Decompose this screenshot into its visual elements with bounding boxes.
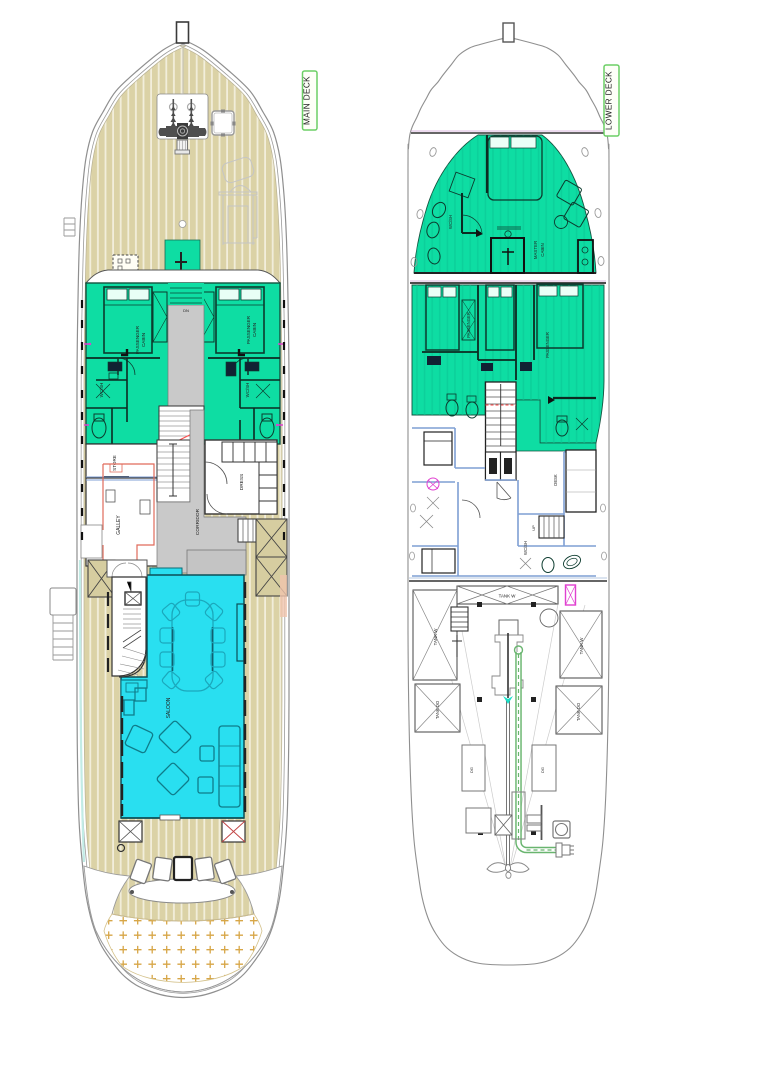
svg-text:CABIN: CABIN (540, 243, 545, 256)
svg-text:DN: DN (183, 308, 189, 313)
svg-text:WC/SH: WC/SH (523, 541, 528, 555)
svg-text:TANK W: TANK W (433, 628, 438, 646)
svg-text:GALLEY: GALLEY (116, 515, 122, 535)
svg-text:UP: UP (531, 525, 536, 531)
svg-text:DRESS: DRESS (239, 474, 245, 491)
svg-text:TANK W: TANK W (579, 637, 584, 655)
svg-text:WC/SH: WC/SH (99, 383, 104, 398)
svg-text:CORRIDOR: CORRIDOR (195, 508, 201, 535)
svg-text:DG: DG (540, 767, 545, 773)
svg-text:WC/SH: WC/SH (448, 215, 453, 229)
svg-text:PASSENGER: PASSENGER (545, 332, 550, 358)
svg-text:PASSENGER: PASSENGER (135, 325, 140, 354)
svg-text:DG: DG (469, 767, 474, 773)
svg-text:SALOON: SALOON (166, 697, 172, 718)
svg-text:TANK DO: TANK DO (435, 700, 440, 719)
svg-text:TANK DO: TANK DO (576, 702, 581, 721)
svg-text:DESK: DESK (553, 474, 558, 486)
svg-text:CABIN: CABIN (252, 323, 257, 337)
svg-text:CABIN: CABIN (141, 333, 146, 347)
svg-text:MASTER: MASTER (533, 241, 538, 259)
svg-text:PASSENGER: PASSENGER (466, 312, 471, 338)
svg-text:TANK W: TANK W (499, 594, 517, 599)
svg-text:MAIN DECK: MAIN DECK (303, 76, 312, 125)
svg-text:LOWER DECK: LOWER DECK (605, 71, 614, 130)
svg-text:PASSENGER: PASSENGER (246, 315, 251, 344)
svg-text:WC/SH: WC/SH (245, 383, 250, 398)
svg-text:STORE: STORE (112, 455, 117, 471)
